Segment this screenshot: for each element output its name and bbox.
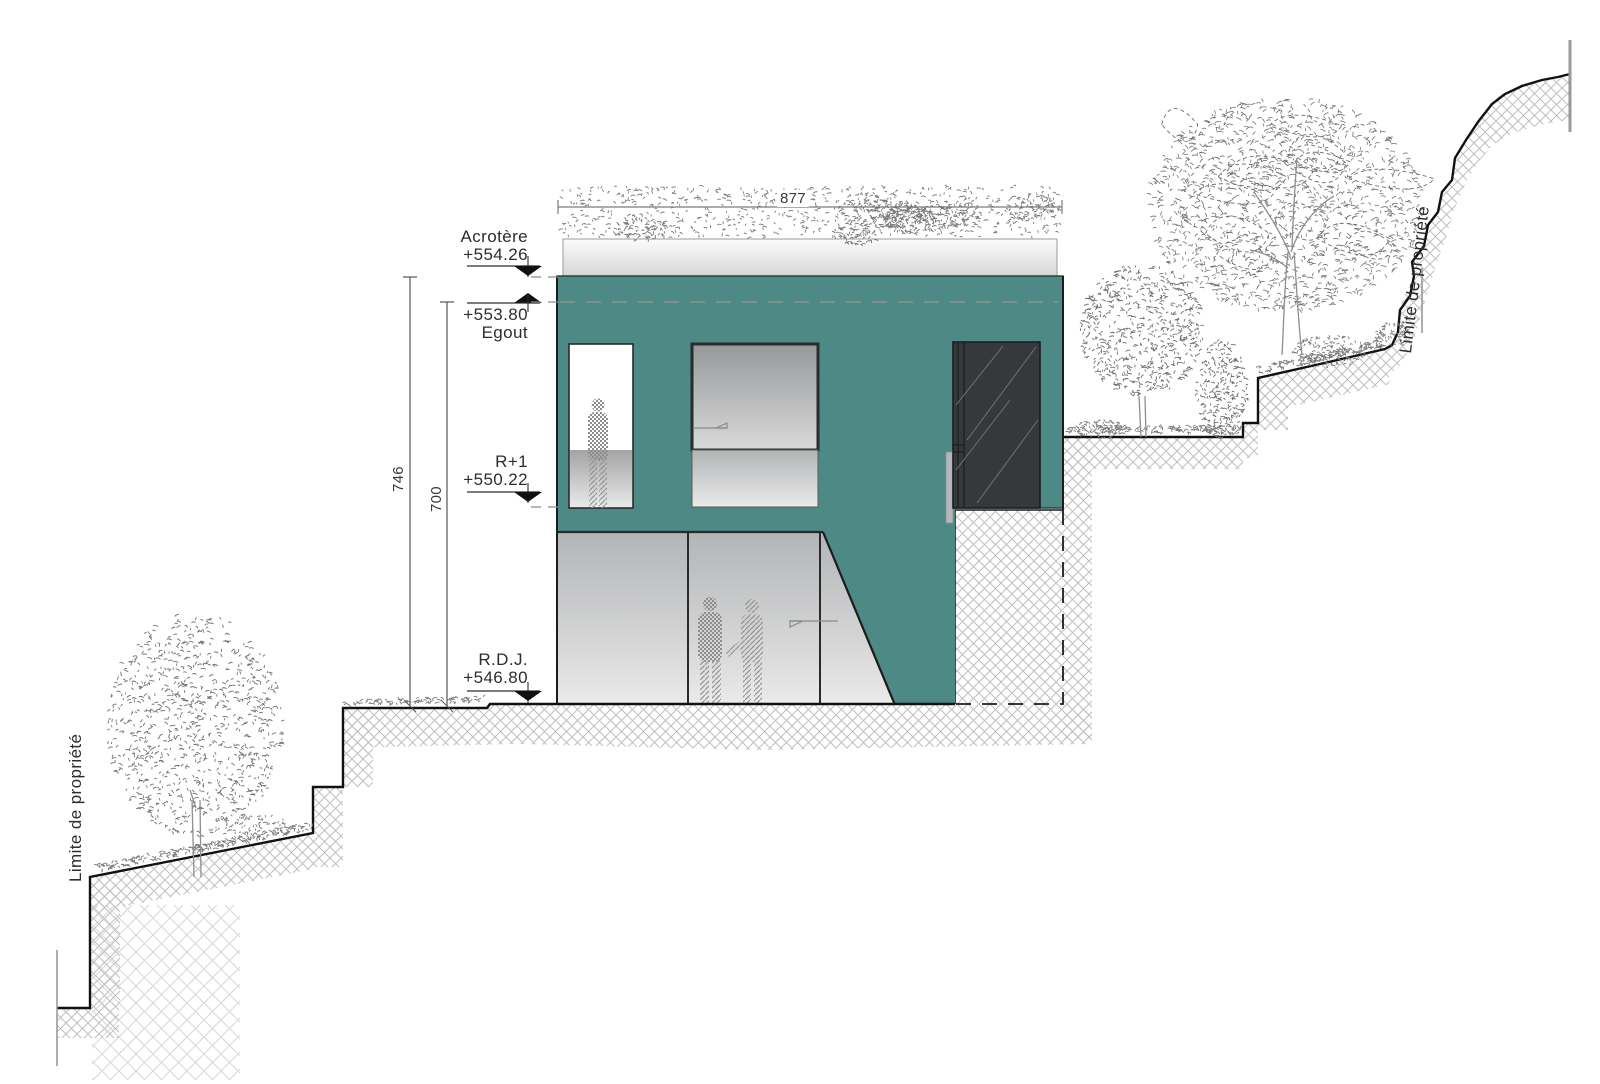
level-value-r1: +550.22 xyxy=(396,470,528,490)
door-side-strip xyxy=(946,452,953,523)
window-upper-left xyxy=(569,344,633,508)
level-value-rdj: +546.80 xyxy=(396,668,528,688)
level-marker-rdj xyxy=(514,691,542,701)
tree-left-canopy xyxy=(107,614,284,837)
level-label-egout: Egout xyxy=(396,323,528,343)
earth-block-section xyxy=(955,510,1063,704)
level-label-rdj: R.D.J. xyxy=(396,650,528,670)
roof-dimension-line xyxy=(558,200,1062,214)
window-upper-center xyxy=(692,344,818,507)
property-limit-label-left: Limite de propriété xyxy=(66,734,86,882)
level-marker-acrotere xyxy=(514,266,542,276)
dimension-height-total: 746 xyxy=(390,466,407,492)
level-label-acrotere: Acrotère xyxy=(396,227,528,247)
parapet-slab xyxy=(563,239,1057,276)
dimension-roof-width: 877 xyxy=(777,190,809,207)
tree-right-small-canopy xyxy=(1080,265,1204,396)
level-label-r1: R+1 xyxy=(396,452,528,472)
grass-left-plateau xyxy=(343,695,486,707)
bush-conifer xyxy=(1195,340,1249,439)
tree-big-foliage-clusters xyxy=(1162,109,1435,270)
elevation-drawing: Acrotère +554.26 +553.80 Egout R+1 +550.… xyxy=(0,0,1600,1084)
level-value-acrotere: +554.26 xyxy=(396,245,528,265)
green-roof-vegetation xyxy=(559,185,1061,246)
level-value-egout: +553.80 xyxy=(396,305,528,325)
drawing-canvas xyxy=(0,0,1600,1084)
dimension-height-egout: 700 xyxy=(428,486,445,512)
level-marker-r1 xyxy=(514,492,542,502)
entrance-door xyxy=(946,342,1040,523)
